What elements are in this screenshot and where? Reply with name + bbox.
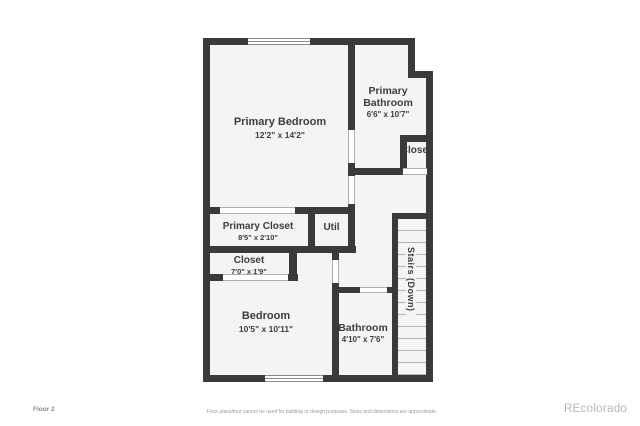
wall-exterior-right xyxy=(426,71,433,382)
door-opening-closet-upper xyxy=(403,168,427,175)
room-label-primary-closet: Primary Closet 8'5" x 2'10" xyxy=(213,221,303,242)
door-opening-primary-bedroom-entry xyxy=(348,176,355,204)
opening-primary-closet xyxy=(220,207,295,214)
room-label-bathroom: Bathroom 4'10" x 7'6" xyxy=(330,322,396,344)
room-label-primary-bedroom: Primary Bedroom 12'2" x 14'2" xyxy=(210,116,350,140)
primary-bedroom-dims: 12'2" x 14'2" xyxy=(210,131,350,141)
primary-bathroom-dims: 6'6" x 10'7" xyxy=(352,110,424,119)
wall-primary-bathroom-bottom xyxy=(348,168,407,175)
primary-closet-name: Primary Closet xyxy=(213,221,303,233)
closet-lower-dims: 7'0" x 1'9" xyxy=(209,268,289,277)
primary-closet-dims: 8'5" x 2'10" xyxy=(213,234,303,243)
bedroom-dims: 10'5" x 10'11" xyxy=(206,325,326,335)
floor-plan-page: { "rooms": { "primary_bedroom": { "name"… xyxy=(0,0,640,426)
room-label-primary-bathroom: Primary Bathroom 6'6" x 10'7" xyxy=(352,85,424,119)
wall-closet-lower-right xyxy=(289,253,297,275)
wall-closet-upper-top xyxy=(400,135,433,142)
recolorado-watermark: REcolorado xyxy=(564,403,627,415)
room-label-stairs: Stairs (Down) xyxy=(406,244,416,315)
closet-upper-name: Closet xyxy=(398,145,434,157)
bathroom-name: Bathroom xyxy=(330,322,396,334)
room-label-util: Util xyxy=(311,222,352,234)
window-bottom xyxy=(265,375,323,382)
bedroom-name: Bedroom xyxy=(206,310,326,323)
floor-plan: Primary Bedroom 12'2" x 14'2" Primary Ba… xyxy=(0,0,640,426)
door-opening-bathroom-entry xyxy=(360,287,387,293)
window-top xyxy=(248,38,310,45)
closet-lower-name: Closet xyxy=(209,255,289,267)
util-name: Util xyxy=(311,222,352,234)
room-label-closet-upper: Closet xyxy=(398,145,434,157)
primary-bedroom-name: Primary Bedroom xyxy=(210,116,350,129)
floor-number-label: Floor 2 xyxy=(33,406,55,413)
primary-bathroom-name: Primary Bathroom xyxy=(352,85,424,109)
bathroom-dims: 4'10" x 7'6" xyxy=(330,335,396,344)
room-label-bedroom: Bedroom 10'5" x 10'11" xyxy=(206,310,326,334)
room-label-closet-lower: Closet 7'0" x 1'9" xyxy=(209,255,289,276)
disclaimer-text: Floor plans/tour cannot be used for buil… xyxy=(122,409,522,415)
door-opening-bedroom-entry xyxy=(332,260,339,283)
wall-primary-closet-bottom xyxy=(203,246,356,253)
